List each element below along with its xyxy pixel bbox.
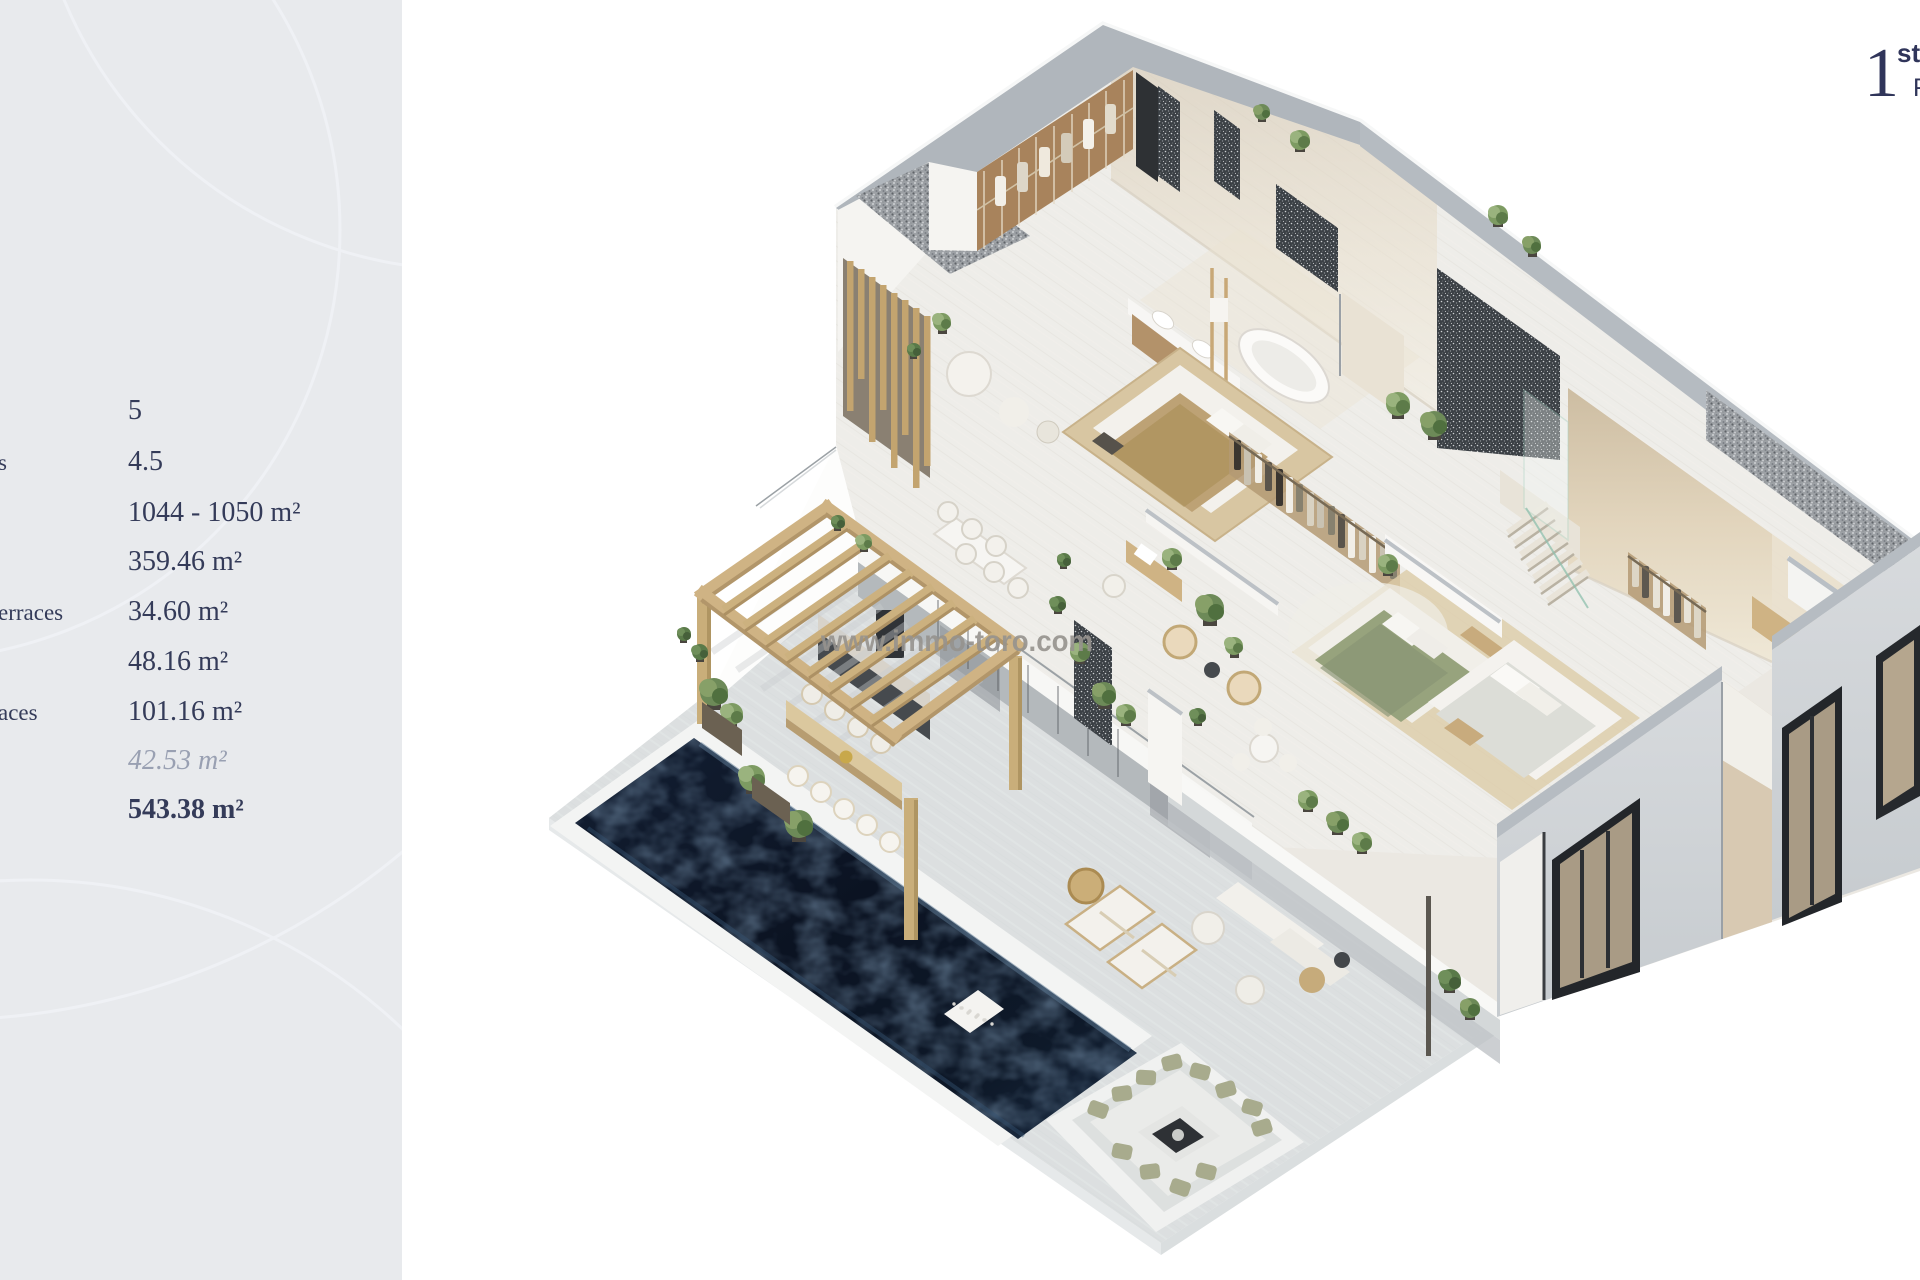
svg-text:st: st (1897, 38, 1920, 68)
svg-text:42.53 m²: 42.53 m² (128, 745, 227, 776)
svg-text:aces: aces (0, 700, 38, 725)
svg-text:101.16 m²: 101.16 m² (128, 696, 242, 727)
svg-text:359.46 m²: 359.46 m² (128, 546, 242, 577)
svg-text:4.5: 4.5 (128, 446, 163, 477)
svg-text:s: s (0, 450, 7, 475)
svg-text:5: 5 (128, 395, 142, 426)
svg-text:34.60 m²: 34.60 m² (128, 596, 228, 627)
svg-text:543.38 m²: 543.38 m² (128, 794, 244, 825)
svg-text:48.16 m²: 48.16 m² (128, 646, 228, 677)
svg-text:1044 - 1050 m²: 1044 - 1050 m² (128, 497, 301, 528)
svg-text:www.immo-toro.com: www.immo-toro.com (820, 625, 1093, 658)
svg-text:erraces: erraces (0, 600, 63, 625)
svg-text:FLOOR: FLOOR (1913, 74, 1920, 102)
svg-text:1: 1 (1864, 35, 1899, 112)
